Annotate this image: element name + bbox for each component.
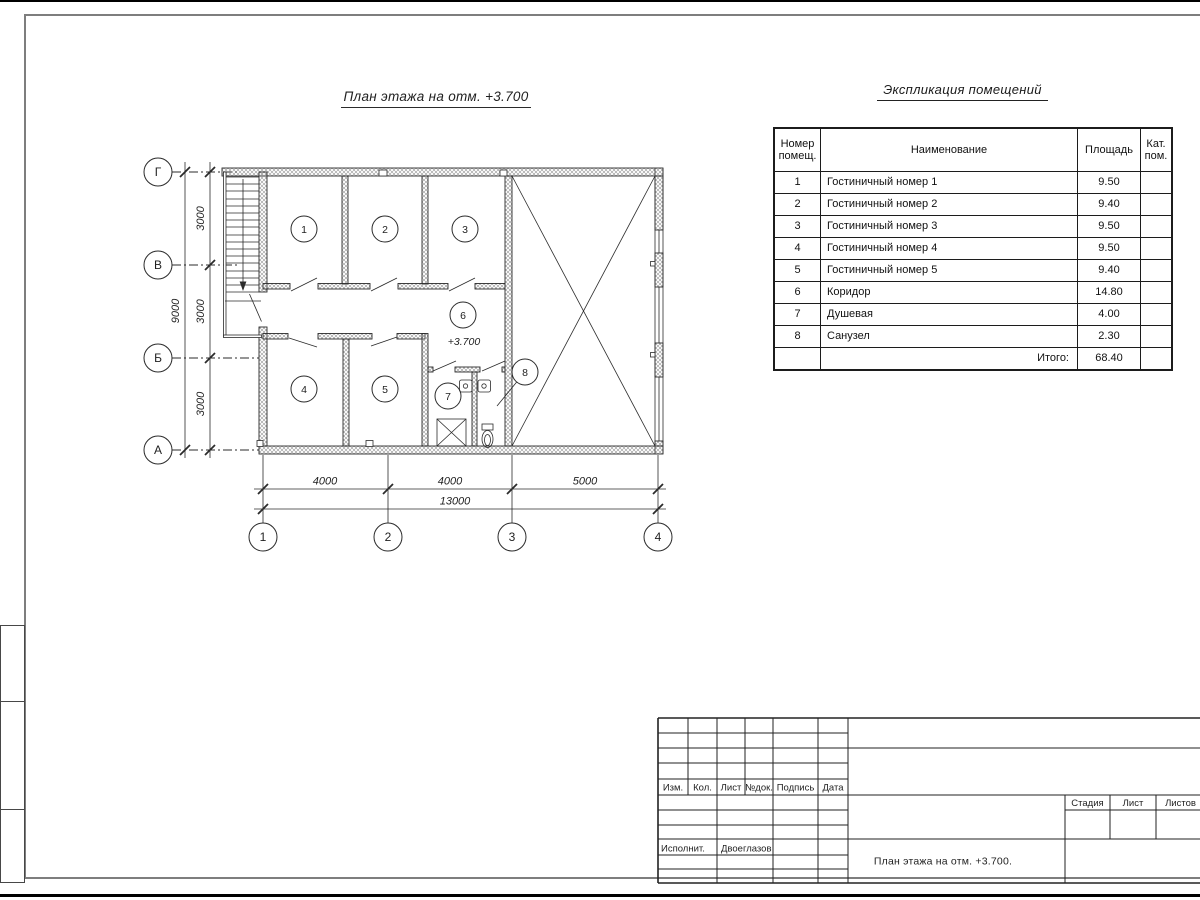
room-area: 9.40 [1078, 194, 1141, 216]
dim-label: 4000 [438, 476, 463, 488]
room-tag-2: 2 [382, 224, 388, 236]
stair-wall [224, 335, 262, 338]
washbasin-drain [463, 384, 467, 388]
wall-exterior-top [222, 168, 663, 176]
wall-niche [366, 441, 373, 447]
elevation-mark: +3.700 [448, 336, 481, 348]
total-area: 68.40 [1078, 348, 1141, 371]
executor-name: Двоеглазов [721, 844, 772, 855]
room-name: Гостиничный номер 1 [821, 172, 1078, 194]
floor-plan: План этажа на отм. +3.700 [140, 80, 700, 560]
dim-label: 3000 [195, 391, 207, 416]
room-tags: 1 2 3 4 5 6 7 8 +3.700 [291, 216, 538, 409]
schedule-row: 6Коридор14.80 [774, 282, 1172, 304]
door-swing [482, 361, 505, 371]
door-swing [449, 278, 475, 291]
axis-bubble-3: 3 [509, 530, 516, 544]
schedule-row: 4Гостиничный номер 49.50 [774, 238, 1172, 260]
axis-bubble-g: Г [155, 165, 162, 179]
wall-pier [655, 441, 663, 446]
col-header-area: Площадь [1078, 128, 1141, 172]
axis-bubble-1: 1 [260, 530, 267, 544]
window-sill-mark [651, 262, 656, 267]
washbasin-drain [482, 384, 486, 388]
door-swing [291, 278, 317, 291]
dim-total-label: 13000 [440, 496, 471, 508]
room-tag-8: 8 [522, 367, 528, 379]
total-label: Итого: [821, 348, 1078, 371]
room-number: 1 [774, 172, 821, 194]
stage-label: Стадия [1071, 798, 1103, 809]
col-header-name: Наименование [821, 128, 1078, 172]
corridor-wall [263, 334, 288, 340]
room-schedule: Номер помещ. Наименование Площадь Кат. п… [773, 127, 1173, 371]
wall-segment [502, 367, 505, 372]
col-header-number: Номер помещ. [774, 128, 821, 172]
room-tag-3: 3 [462, 224, 468, 236]
axis-bubble-2: 2 [385, 530, 392, 544]
doors [250, 278, 506, 371]
corridor-wall [397, 334, 425, 340]
wall-exterior-bottom [259, 446, 663, 454]
sheet-doc-title: План этажа на отм. +3.700. [874, 856, 1012, 868]
room-number: 5 [774, 260, 821, 282]
room-number: 7 [774, 304, 821, 326]
partition-room5-7 [422, 334, 428, 447]
schedule-total-row: Итого: 68.40 [774, 348, 1172, 371]
toilet-bowl [482, 431, 493, 448]
door-swing [250, 294, 262, 322]
partition-room4-5 [343, 339, 349, 446]
room-number: 6 [774, 282, 821, 304]
margin-box [0, 701, 25, 810]
washbasin [478, 380, 491, 392]
shower-tray-cross [437, 419, 466, 446]
axis-lines [172, 172, 658, 523]
axis-bubble-a: А [154, 443, 162, 457]
washbasin [460, 380, 473, 392]
dim-label: 5000 [573, 476, 598, 488]
wall-niche [257, 441, 263, 447]
title-block: Изм. Кол. Лист №док. Подпись Дата Исполн… [655, 712, 1200, 890]
dim-label: 3000 [195, 205, 207, 230]
schedule-row: 7Душевая4.00 [774, 304, 1172, 326]
dim-label: 3000 [195, 298, 207, 323]
stair-direction-arrow [240, 282, 247, 292]
schedule-row: 2Гостиничный номер 29.40 [774, 194, 1172, 216]
wall-pier [655, 176, 663, 230]
door-swing [433, 361, 456, 371]
wall-pier [655, 343, 663, 377]
room-name: Коридор [821, 282, 1078, 304]
room-number: 8 [774, 326, 821, 348]
axis-bubble-v: В [154, 258, 162, 272]
room-area: 14.80 [1078, 282, 1141, 304]
toilet-tank [482, 424, 493, 430]
wall-niche [500, 170, 507, 176]
room-tag-6: 6 [460, 310, 466, 322]
schedule-row: 8Санузел2.30 [774, 326, 1172, 348]
toilet-bowl-inner [485, 435, 491, 446]
corridor-wall [263, 284, 290, 290]
schedule-row: 3Гостиничный номер 39.50 [774, 216, 1172, 238]
void-area-cross [512, 176, 655, 446]
corridor-wall [318, 334, 372, 340]
partition-room1-2 [342, 176, 348, 284]
wall-segment [428, 367, 433, 372]
dimensions-bottom: 4000 4000 5000 13000 [254, 476, 666, 515]
total-spacer [774, 348, 821, 371]
schedule-row: 5Гостиничный номер 59.40 [774, 260, 1172, 282]
schedule-header-row: Номер помещ. Наименование Площадь Кат. п… [774, 128, 1172, 172]
axis-bubble-b: Б [154, 351, 162, 365]
plan-title: План этажа на отм. +3.700 [343, 89, 528, 104]
schedule-title: Экспликация помещений [877, 82, 1048, 101]
revision-col-kol: Кол. [693, 783, 712, 794]
col-header-cat: Кат. пом. [1141, 128, 1173, 172]
revision-col-doc: №док. [745, 783, 773, 794]
wall-exterior-left [259, 172, 267, 292]
schedule-row: 1Гостиничный номер 19.50 [774, 172, 1172, 194]
door-swing [289, 338, 317, 347]
room-area: 9.40 [1078, 260, 1141, 282]
room-name: Санузел [821, 326, 1078, 348]
axis-bubbles-left: Г В Б А [144, 158, 172, 464]
screen-bottom-edge [0, 894, 1200, 897]
wall-niche [379, 170, 387, 176]
partition-room7-8 [472, 372, 477, 446]
room-tag-1: 1 [301, 224, 307, 236]
wall-interior [505, 176, 512, 446]
margin-box [0, 625, 25, 702]
screen-top-edge [0, 0, 1200, 2]
wall-pier [655, 253, 663, 287]
room-area: 9.50 [1078, 238, 1141, 260]
room-cat [1141, 194, 1173, 216]
room-area: 9.50 [1078, 216, 1141, 238]
corridor-wall [318, 284, 370, 290]
dimensions-left: 3000 3000 3000 9000 [170, 162, 215, 458]
margin-box [0, 809, 25, 883]
dim-label: 4000 [313, 476, 338, 488]
room-name: Гостиничный номер 3 [821, 216, 1078, 238]
revision-col-list: Лист [721, 783, 742, 794]
room-name: Гостиничный номер 5 [821, 260, 1078, 282]
sheets-label: Листов [1165, 798, 1196, 809]
room-cat [1141, 304, 1173, 326]
staircase [224, 172, 262, 338]
axis-bubbles-bottom: 1 2 3 4 [249, 523, 672, 551]
room-cat [1141, 216, 1173, 238]
room-tag-5: 5 [382, 384, 388, 396]
window-sill-mark [651, 353, 656, 358]
room-area: 2.30 [1078, 326, 1141, 348]
wall-exterior-left [259, 327, 267, 446]
axis-bubble-4: 4 [655, 530, 662, 544]
room-cat [1141, 282, 1173, 304]
room-name: Душевая [821, 304, 1078, 326]
room-number: 4 [774, 238, 821, 260]
revision-col-izm: Изм. [663, 783, 683, 794]
wall-segment [455, 367, 480, 372]
room-cat [1141, 260, 1173, 282]
room-number: 3 [774, 216, 821, 238]
room-tag-4: 4 [301, 384, 307, 396]
walls [222, 168, 663, 454]
room-cat [1141, 326, 1173, 348]
sheet: План этажа на отм. +3.700 [0, 0, 1200, 900]
sheet-label: Лист [1123, 798, 1144, 809]
total-cat [1141, 348, 1173, 371]
room-cat [1141, 238, 1173, 260]
room-number: 2 [774, 194, 821, 216]
room-area: 4.00 [1078, 304, 1141, 326]
stair-wall [224, 172, 227, 337]
dim-total-label: 9000 [170, 298, 182, 323]
partition-room2-3 [422, 176, 428, 284]
corridor-wall [475, 284, 505, 290]
revision-col-podpis: Подпись [777, 783, 815, 794]
door-swing [371, 337, 397, 346]
room-tag-7: 7 [445, 391, 451, 403]
executor-label: Исполнит. [661, 844, 705, 855]
room-cat [1141, 172, 1173, 194]
room-name: Гостиничный номер 4 [821, 238, 1078, 260]
schedule-title-wrap: Экспликация помещений [773, 81, 1152, 101]
room-area: 9.50 [1078, 172, 1141, 194]
revision-col-data: Дата [822, 783, 844, 794]
corridor-wall [398, 284, 448, 290]
room-name: Гостиничный номер 2 [821, 194, 1078, 216]
door-swing [371, 278, 397, 291]
